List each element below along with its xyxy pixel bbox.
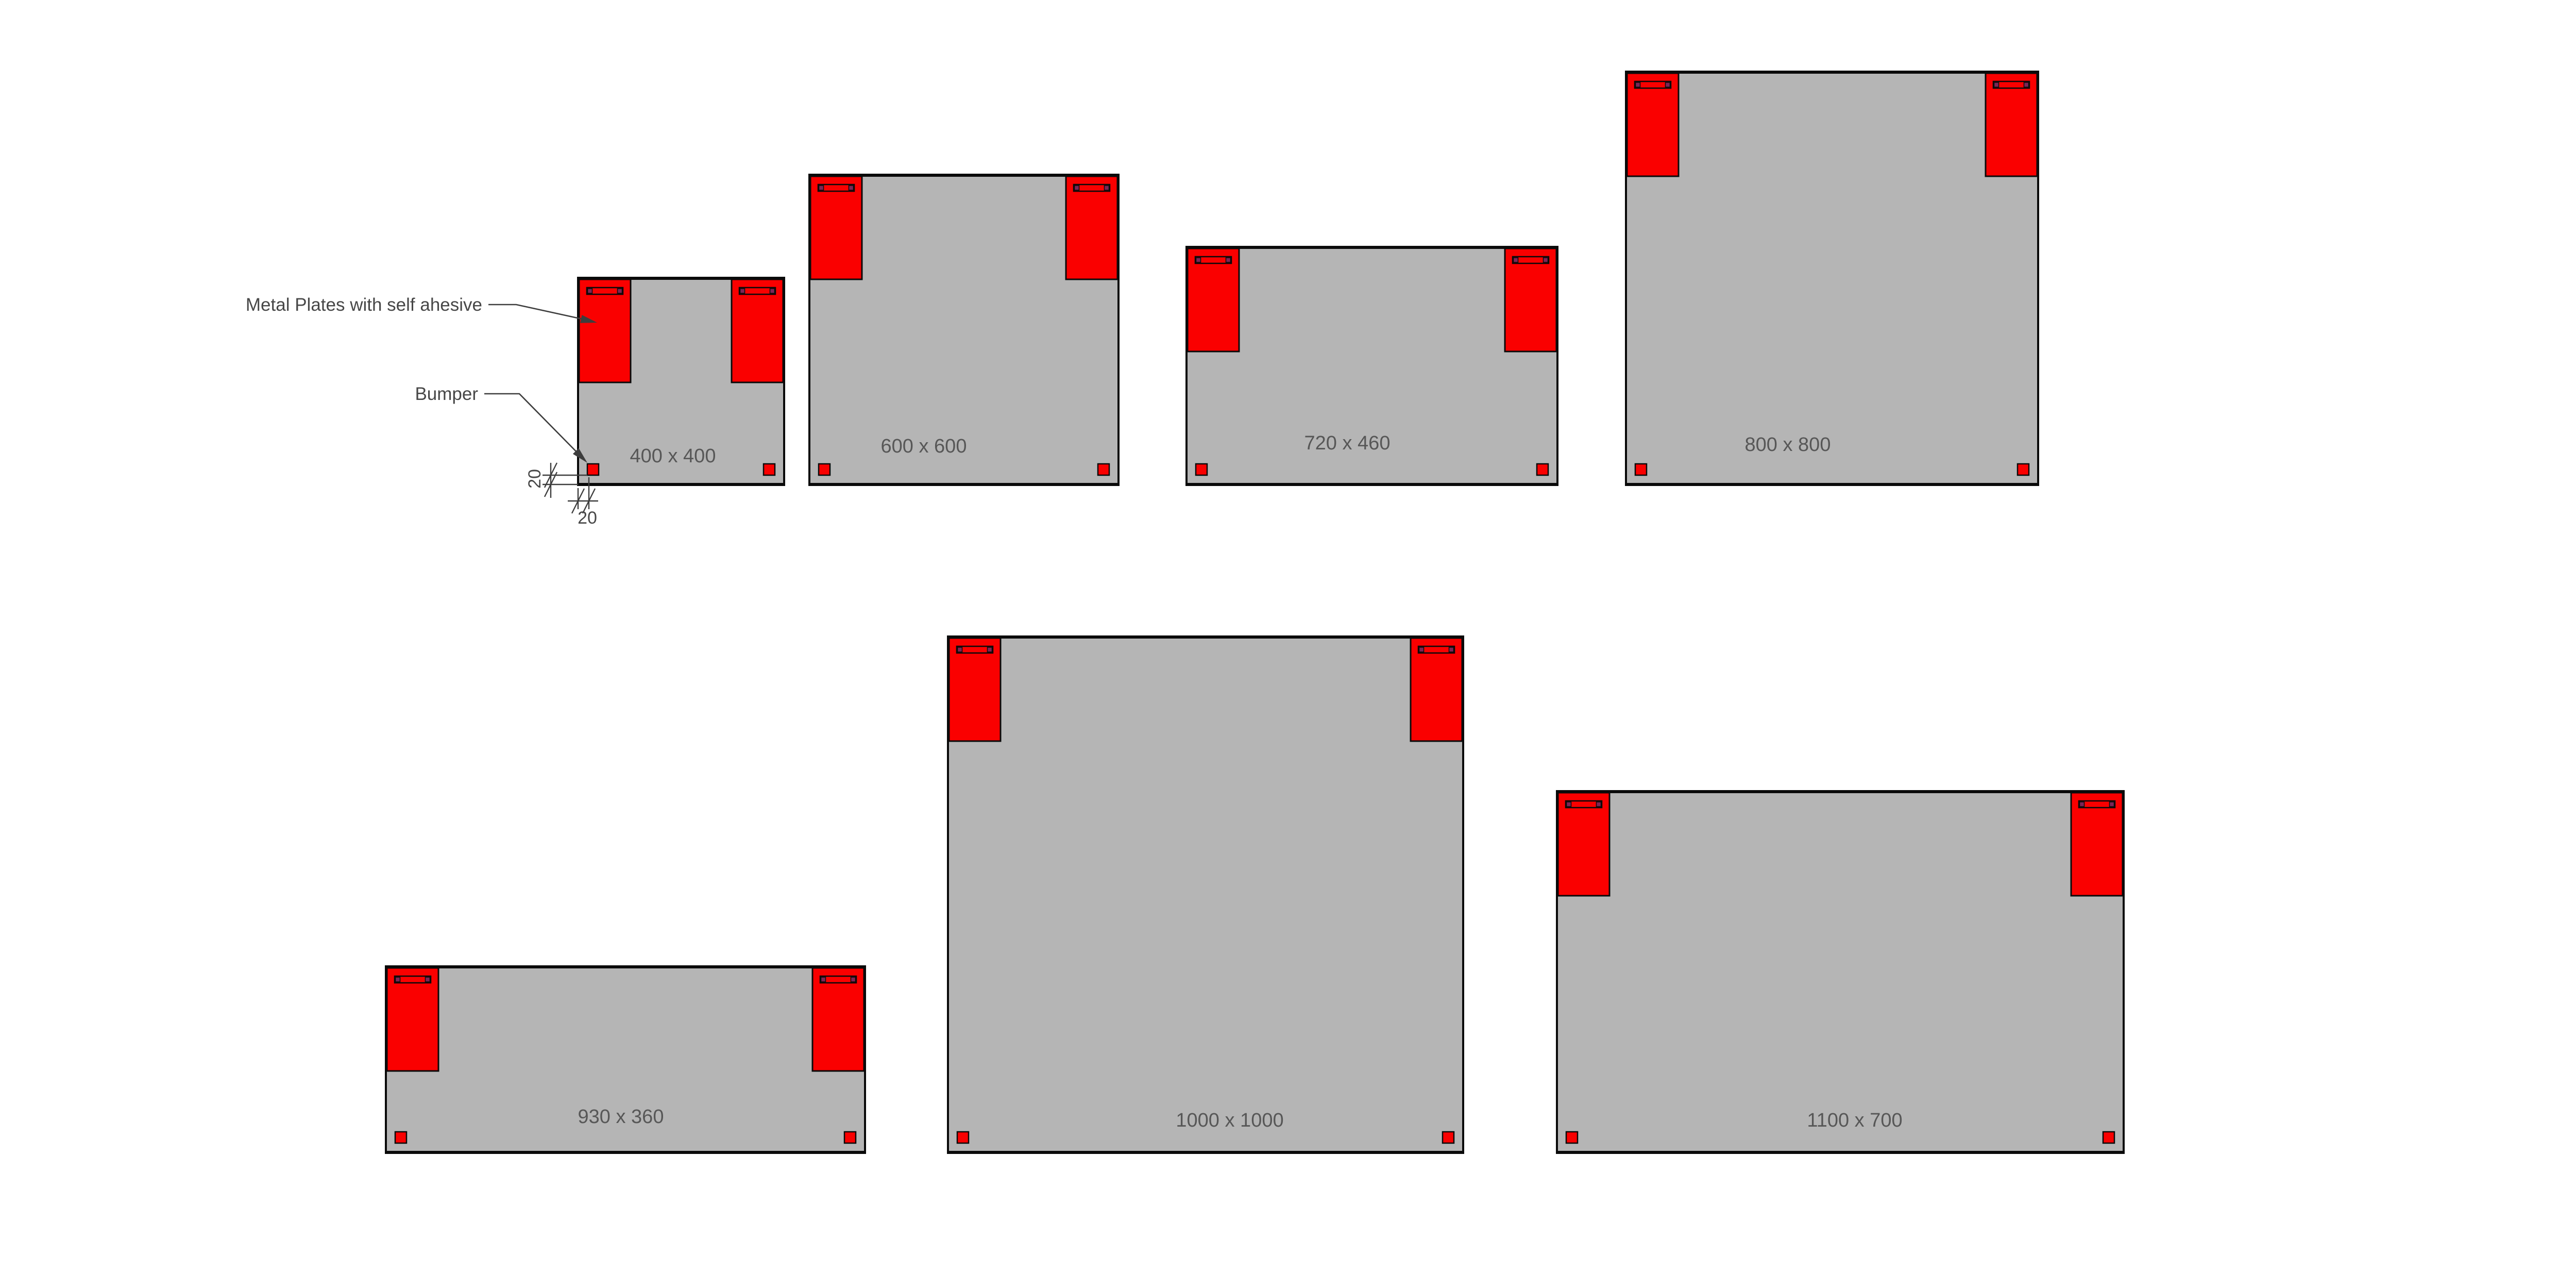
panels-layer: 400 x 400600 x 600720 x 460800 x 800930 … [385,71,2125,1154]
bumper-leader-line [484,394,585,460]
bumper-left [1566,1132,1578,1143]
panel-body [1626,72,2038,484]
panel-1000x1000: 1000 x 1000 [947,635,1464,1154]
slot-pin-left [1994,82,1999,87]
slot-pin-left [2080,802,2084,807]
slot-pin-right [1666,82,1670,87]
panel-600x600: 600 x 600 [808,174,1120,486]
slot-pin-right [1544,258,1548,262]
panel-body [948,637,1463,1152]
panel-size-label: 400 x 400 [630,445,716,467]
panel-bottom-edge [1556,1151,2125,1154]
panel-top-edge [1625,71,2039,74]
annotations-layer: Metal Plates with self ahesive Bumper 20… [246,295,598,528]
slot-pin-left [1196,258,1201,262]
slot-pin-right [1226,258,1231,262]
panel-top-edge [1185,246,1558,249]
slot-pin-right [770,289,775,293]
bumper-right [1098,464,1109,475]
bumper-left [395,1132,406,1143]
panel-size-label: 800 x 800 [1745,434,1831,456]
slot-pin-left [588,289,592,293]
panel-bottom-edge [577,483,785,486]
slot-pin-right [2110,802,2114,807]
panel-930x360: 930 x 360 [385,965,866,1154]
dim-20-horizontal: 20 [578,508,597,528]
panel-size-label: 720 x 460 [1304,432,1391,454]
slot-pin-left [1514,258,1518,262]
bumper-left [1635,464,1647,475]
panel-720x460: 720 x 460 [1185,246,1558,486]
bumper-right [1443,1132,1454,1143]
bumper-left [957,1132,969,1143]
slot-pin-right [426,977,430,982]
slot-pin-left [396,977,400,982]
slot-pin-right [988,647,992,652]
panel-400x400: 400 x 400 [577,277,785,486]
panel-size-label: 1000 x 1000 [1176,1110,1283,1131]
slot-pin-right [2024,82,2029,87]
panel-bottom-edge [808,483,1120,486]
slot-pin-left [819,186,824,190]
slot-pin-right [1105,186,1109,190]
slot-pin-left [1636,82,1640,87]
panel-layout-drawing: 400 x 400600 x 600720 x 460800 x 800930 … [0,0,2576,1273]
slot-pin-left [1567,802,1571,807]
panel-body [1557,792,2124,1152]
panel-bottom-edge [947,1151,1464,1154]
slot-pin-left [958,647,962,652]
bumper-label: Bumper [415,384,478,404]
slot-pin-right [1449,647,1454,652]
panel-top-edge [947,635,1464,639]
panel-bottom-edge [1185,483,1558,486]
slot-pin-right [618,289,622,293]
metal-plates-label: Metal Plates with self ahesive [246,295,482,315]
slot-pin-left [740,289,745,293]
slot-pin-right [1597,802,1601,807]
panel-1100x700: 1100 x 700 [1556,790,2125,1154]
panel-top-edge [385,965,866,968]
panel-bottom-edge [1625,483,2039,486]
bumper-left [819,464,830,475]
bumper-right [2018,464,2029,475]
bumper-right [844,1132,856,1143]
panel-bottom-edge [385,1151,866,1154]
panel-size-label: 930 x 360 [578,1106,664,1128]
bumper-left [1196,464,1207,475]
slot-pin-left [821,977,826,982]
bumper-right [1537,464,1548,475]
panel-size-label: 1100 x 700 [1807,1110,1902,1131]
bumper-left [587,464,599,475]
bumper-right [2103,1132,2114,1143]
slot-pin-left [1419,647,1424,652]
dim-20-vertical: 20 [525,469,545,489]
panel-top-edge [1556,790,2125,793]
panel-800x800: 800 x 800 [1625,71,2039,486]
slot-pin-right [851,977,856,982]
bumper-right [764,464,775,475]
slot-pin-right [849,186,854,190]
slot-pin-left [1075,186,1079,190]
panel-size-label: 600 x 600 [881,435,967,457]
